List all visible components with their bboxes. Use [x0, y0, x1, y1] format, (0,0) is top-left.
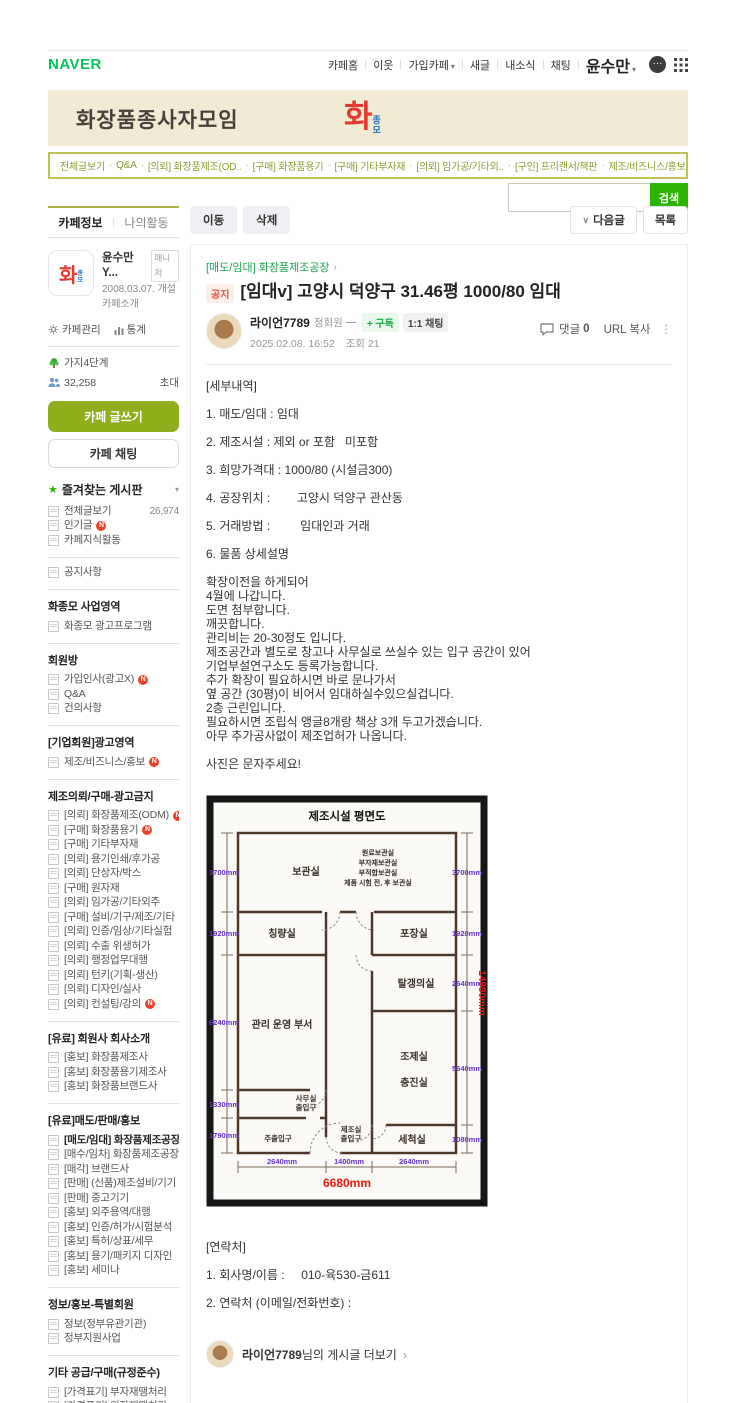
board-icon [48, 621, 59, 632]
navbar-item[interactable]: [의뢰] 임가공/기타외.. [416, 158, 503, 173]
delete-button[interactable]: 삭제 [243, 206, 290, 234]
board-icon [48, 1081, 59, 1092]
dim-bottom: 2640mm [399, 1157, 429, 1166]
board-label: [홍보] 화장품브랜드사 [64, 1080, 157, 1094]
cafe-profile: 화 종 모 윤수만 Y... 매니저 2008.03.07. 개설 카페소개 [48, 250, 179, 312]
board-icon [48, 1149, 59, 1160]
sidebar-board-item[interactable]: 건의사항 [48, 702, 179, 717]
star-icon: ★ [48, 483, 58, 496]
board-icon [48, 1135, 59, 1146]
board-label: 인기글 [64, 519, 92, 533]
board-label: 건의사항 [64, 702, 102, 716]
dim-left: 1790mm [209, 1131, 239, 1140]
board-icon [48, 825, 59, 836]
sidebar-board-item[interactable]: [홍보] 화장품용기제조사 [48, 1065, 179, 1080]
manager-badge: 매니저 [151, 250, 180, 282]
bar-chart-icon [114, 325, 124, 335]
sidebar-board-item[interactable]: [매도/임대] 화장품제조공장 [48, 1133, 179, 1148]
post-author-row: 라이언7789 정회원 — + 구독 1:1 채팅 2025.02.08. 16… [206, 313, 672, 351]
author-name[interactable]: 라이언7789 [250, 314, 310, 331]
avatar [206, 1340, 234, 1368]
chevron-down-icon: ▾ [451, 62, 455, 71]
divider [48, 1355, 179, 1356]
sidebar-board-item[interactable]: [홍보] 세미나 [48, 1264, 179, 1279]
board-label: [구매] 화장품용기 [64, 824, 138, 838]
sidebar-board-item[interactable]: [구매] 설비/기구/제조/기타 [48, 910, 179, 925]
apps-grid-icon[interactable] [674, 58, 688, 72]
room-weighing: 칭량실 [268, 927, 296, 940]
breadcrumb[interactable]: [매도/임대] 화장품제조공장 › [206, 259, 672, 275]
board-icon [48, 1178, 59, 1189]
sidebar-board-item[interactable]: [의뢰] 컨설팅/강의N [48, 997, 179, 1012]
more-options-icon[interactable]: ⋮ [661, 322, 673, 336]
sidebar-board-item[interactable]: [의뢰] 디자인/실사 [48, 983, 179, 998]
room-management: 관리 운영 부서 [252, 1018, 313, 1031]
divider [48, 779, 179, 780]
board-icon [48, 1265, 59, 1276]
tab-my-activity[interactable]: 나의활동 [114, 214, 179, 231]
room-washing: 세척실 [398, 1133, 426, 1146]
navbar-item[interactable]: [구매] 기타부자재 [334, 158, 405, 173]
board-label: 공지사항 [64, 566, 102, 580]
navbar-item[interactable]: Q&A [116, 160, 137, 171]
board-icon [48, 854, 59, 865]
sidebar-menu: 전체글보기26,974인기글N카페지식활동공지사항화종모 사업영역화종모 광고프… [48, 504, 179, 1403]
board-icon [48, 984, 59, 995]
tab-cafe-info[interactable]: 카페정보 [48, 214, 113, 231]
board-label: [홍보] 외주용역/대행 [64, 1206, 151, 1220]
sidebar-board-item[interactable]: [가격표기] 부자재땡처리 [48, 1385, 179, 1400]
divider [48, 589, 179, 590]
main-entrance-label: 주출입구 [264, 1133, 292, 1143]
cafe-chat-button[interactable]: 카페 채팅 [48, 439, 179, 468]
topbar-user-menu[interactable]: 윤수만▾ [579, 53, 643, 77]
cafe-stats-link[interactable]: 통계 [114, 322, 146, 337]
office-entrance-label: 사무실 [296, 1093, 317, 1103]
board-icon [48, 1333, 59, 1344]
members-icon [48, 377, 60, 388]
cafe-manage-link[interactable]: 카페관리 [48, 322, 101, 337]
dim-left: 6240mm [209, 1018, 239, 1027]
board-icon [48, 897, 59, 908]
board-label: [홍보] 화장품용기제조사 [64, 1066, 167, 1080]
board-icon [48, 912, 59, 923]
sidebar-board-item[interactable]: 가입인사(광고X)N [48, 673, 179, 688]
new-badge: N [145, 999, 155, 1009]
board-label: Q&A [64, 688, 86, 702]
gear-icon [48, 324, 59, 335]
board-label: [의뢰] 수출 위생허가 [64, 940, 151, 954]
storage-note: 부적합보관실 [359, 868, 398, 877]
dim-total-height: 14980mm [476, 970, 487, 1016]
divider [48, 725, 179, 726]
board-label: [구매] 원자재 [64, 882, 119, 896]
dim-right: 5640mm [452, 1064, 482, 1073]
subscribe-button[interactable]: + 구독 [362, 313, 399, 332]
sidebar-board-item[interactable]: [의뢰] 단상자/박스 [48, 867, 179, 882]
cafe-logo-sub-bottom: 모 [77, 278, 83, 285]
sidebar-board-item[interactable]: Q&A [48, 687, 179, 702]
sidebar-board-item[interactable]: 인기글N [48, 519, 179, 534]
board-label: [홍보] 용기/패키지 디자인 [64, 1250, 172, 1264]
mfg-entrance-label: 출입구 [341, 1133, 362, 1143]
board-label: 전체글보기 [64, 505, 111, 519]
favorite-boards-header: ★ 즐겨찾는 게시판 ▾ [48, 481, 179, 498]
sidebar-board-item[interactable]: [홍보] 용기/패키지 디자인 [48, 1249, 179, 1264]
sidebar-section-title: 회원방 [48, 652, 179, 668]
board-label: 가입인사(광고X) [64, 673, 134, 687]
board-icon [48, 1236, 59, 1247]
board-icon [48, 535, 59, 546]
sidebar-board-item[interactable]: 카페지식활동 [48, 533, 179, 548]
cafe-intro-link[interactable]: 카페소개 [102, 297, 179, 312]
divider [48, 1103, 179, 1104]
board-icon [48, 520, 59, 531]
new-badge: N [96, 521, 106, 531]
sidebar-section-title: [유료]매도/판매/홍보 [48, 1112, 179, 1128]
board-label: [의뢰] 행정업무대행 [64, 954, 148, 968]
room-preparation: 조제실 [400, 1050, 428, 1063]
topbar-link[interactable]: 이웃 [366, 57, 400, 73]
naver-logo[interactable]: NAVER [48, 56, 102, 73]
chevron-down-icon[interactable]: ▾ [175, 485, 179, 494]
board-icon [48, 1067, 59, 1078]
next-post-label: 다음글 [593, 212, 625, 228]
room-changing: 탈갱의실 [398, 977, 435, 990]
move-button[interactable]: 이동 [190, 206, 237, 234]
board-label: [의뢰] 화장품제조(ODM) [64, 809, 169, 823]
board-icon [48, 868, 59, 879]
main-content: 이동 삭제 ∨ 다음글 목록 [매도/임대] 화장품제조공장 › 공지 [임대v… [190, 206, 688, 1403]
board-icon [48, 1251, 59, 1262]
board-count: 26,974 [150, 505, 179, 519]
floorplan-image[interactable]: 제조시설 평면도 [206, 795, 488, 1212]
sidebar-board-item[interactable]: [판매] 중고기기 [48, 1191, 179, 1206]
manager-name[interactable]: 윤수만 Y... [102, 251, 147, 281]
divider [48, 1021, 179, 1022]
floorplan-svg: 제조시설 평면도 [206, 795, 488, 1207]
storage-note: 부자재보관실 [359, 858, 398, 867]
sidebar-board-item[interactable]: [의뢰] 용기인쇄/후가공 [48, 852, 179, 867]
new-badge: N [173, 811, 179, 821]
sidebar-board-item[interactable]: [매각] 브랜드사 [48, 1162, 179, 1177]
board-icon [48, 1164, 59, 1175]
board-label: 카페지식활동 [64, 534, 121, 548]
board-label: [판매] (신품)제조설비/기기 [64, 1177, 176, 1191]
room-storage: 보관실 [292, 865, 320, 878]
board-label: [의뢰] 컨설팅/강의 [64, 998, 141, 1012]
sidebar-section-title: 화종모 사업영역 [48, 598, 179, 614]
arrow-right-icon: › [403, 1348, 407, 1362]
sidebar-board-item[interactable]: [홍보] 화장품제조사 [48, 1051, 179, 1066]
board-icon [48, 1193, 59, 1204]
board-icon [48, 955, 59, 966]
board-label: 화종모 광고프로그램 [64, 620, 152, 634]
sidebar-board-item[interactable]: 화종모 광고프로그램 [48, 619, 179, 634]
cafe-logo: 화 종 모 [344, 98, 381, 136]
dot-separator: · [409, 160, 412, 171]
sidebar-board-item[interactable]: [의뢰] 임가공/기타외주 [48, 896, 179, 911]
sidebar-section-title: [기업회원]광고영역 [48, 734, 179, 750]
dim-left: 1330mm [209, 1100, 239, 1109]
arrow-right-icon: › [334, 262, 337, 273]
cafe-logo-sub-bottom: 모 [373, 125, 381, 135]
dim-left: 1920mm [209, 929, 239, 938]
board-label: [의뢰] 턴키(기획-생산) [64, 969, 158, 983]
board-label: [구매] 설비/기구/제조/기타 [64, 911, 175, 925]
list-button[interactable]: 목록 [643, 206, 688, 234]
sidebar-board-item[interactable]: [구매] 기타부자재 [48, 838, 179, 853]
tree-icon [48, 357, 60, 369]
dim-right: 3700mm [452, 868, 482, 877]
sidebar-board-item[interactable]: [매수/임차] 화장품제조공장 [48, 1148, 179, 1163]
board-label: [의뢰] 단상자/박스 [64, 867, 141, 881]
storage-note: 원료보관실 [362, 848, 394, 857]
notice-badge: 공지 [206, 284, 234, 303]
cafe-logo-sub-top: 종 [77, 271, 83, 278]
cafe-admin-row: 카페관리 통계 [48, 322, 179, 337]
sidebar: 카페정보 나의활동 화 종 모 윤수만 Y... 매니저 2008.03.07.… [48, 206, 179, 1403]
new-badge: N [149, 757, 159, 767]
navbar-item[interactable]: 제조/비즈니스/홍보 [608, 158, 685, 173]
board-label: [의뢰] 인증/임상/기타실험 [64, 925, 172, 939]
cafe-level-row: 가지4단계 [48, 355, 179, 370]
sidebar-board-item[interactable]: [의뢰] 수출 위생허가 [48, 939, 179, 954]
sidebar-board-item[interactable]: 정부지원사업 [48, 1332, 179, 1347]
talk-icon[interactable]: ··· [649, 56, 666, 73]
divider [48, 1287, 179, 1288]
post-meta-right: 댓글 0 URL 복사 ⋮ [540, 321, 672, 337]
sidebar-board-item[interactable]: 제조/비즈니스/홍보N [48, 755, 179, 770]
dim-right: 1080mm [452, 1135, 482, 1144]
comment-icon [540, 323, 554, 336]
comment-label[interactable]: 댓글 [559, 321, 580, 337]
navbar-item[interactable]: [구인] 프리랜서/책판 [515, 158, 597, 173]
sidebar-board-item[interactable]: 정보(정부유관기관) [48, 1317, 179, 1332]
post-body: [세부내역] 1. 매도/임대 : 임대 2. 제조시설 : 제외 or 포함 … [206, 379, 672, 771]
cafe-logo-main: 화 [59, 259, 77, 288]
dot-separator: · [141, 160, 144, 171]
board-icon [48, 810, 59, 821]
divider [48, 346, 179, 347]
topbar-link[interactable]: 새글 [463, 57, 497, 73]
sidebar-board-item[interactable]: 공지사항 [48, 566, 179, 581]
post-title-row: 공지 [임대v] 고양시 덕양구 31.46평 1000/80 임대 [206, 281, 672, 303]
divider [206, 364, 672, 365]
post-views: 조회 21 [346, 338, 380, 350]
board-label: 정부지원사업 [64, 1332, 121, 1346]
url-copy-button[interactable]: URL 복사 [604, 321, 651, 337]
post-card: [매도/임대] 화장품제조공장 › 공지 [임대v] 고양시 덕양구 31.46… [190, 244, 688, 1403]
author-more-posts-link[interactable]: 라이언7789님의 게시글 더보기 › [206, 1340, 672, 1368]
post-title: [임대v] 고양시 덕양구 31.46평 1000/80 임대 [240, 281, 560, 303]
dim-left: 3700mm [209, 868, 239, 877]
sidebar-board-item[interactable]: [의뢰] 턴키(기획-생산) [48, 968, 179, 983]
room-filling: 충진실 [400, 1076, 428, 1089]
board-label: [매수/임차] 화장품제조공장 [64, 1148, 179, 1162]
board-icon [48, 674, 59, 685]
navbar-item[interactable]: [구매] 화장품용기 [253, 158, 324, 173]
dot-separator: · [109, 160, 112, 171]
new-badge: N [142, 825, 152, 835]
board-icon [48, 1319, 59, 1330]
post-action-bar: 이동 삭제 ∨ 다음글 목록 [190, 206, 688, 234]
sidebar-board-item[interactable]: [홍보] 화장품브랜드사 [48, 1080, 179, 1095]
next-post-button[interactable]: ∨ 다음글 [570, 206, 636, 234]
sidebar-board-item[interactable]: 전체글보기26,974 [48, 504, 179, 519]
author-name: 라이언7789 [242, 1348, 302, 1362]
board-icon [48, 506, 59, 517]
board-label: [의뢰] 디자인/실사 [64, 983, 141, 997]
divider [48, 643, 179, 644]
sidebar-board-item[interactable]: [의뢰] 화장품제조(ODM)N [48, 809, 179, 824]
cafe-member-count: 32,258 [64, 377, 96, 389]
post-date: 2025.02.08. 16:52 [250, 338, 335, 350]
dot-separator: · [327, 160, 330, 171]
board-label: [의뢰] 용기인쇄/후가공 [64, 853, 160, 867]
board-icon [48, 970, 59, 981]
breadcrumb-label: [매도/임대] 화장품제조공장 [206, 259, 330, 275]
chat-1on1-button[interactable]: 1:1 채팅 [403, 313, 449, 332]
favorite-boards-label: 즐겨찾는 게시판 [62, 481, 143, 498]
new-badge: N [138, 675, 148, 685]
cafe-write-button[interactable]: 카페 글쓰기 [48, 401, 179, 432]
sidebar-board-item[interactable]: [의뢰] 행정업무대행 [48, 954, 179, 969]
dim-right: 1920mm [452, 929, 482, 938]
plan-title: 제조시설 평면도 [308, 809, 386, 823]
sidebar-section-title: [유료] 회원사 회사소개 [48, 1030, 179, 1046]
cafe-since: 2008.03.07. 개설 [102, 282, 179, 297]
board-icon [48, 703, 59, 714]
page: NAVER 카페홈이웃가입카페▾새글내소식채팅 윤수만▾ ··· 화장품종사자모… [0, 0, 734, 1403]
chevron-down-icon: ∨ [582, 215, 589, 226]
storage-note: 제품 시험 전, 후 보관실 [344, 878, 412, 887]
dim-bottom: 1400mm [334, 1157, 364, 1166]
board-label: [구매] 기타부자재 [64, 838, 138, 852]
board-icon [48, 1207, 59, 1218]
dot-separator: · [245, 160, 248, 171]
board-icon [48, 941, 59, 952]
cafe-manage-label: 카페관리 [62, 322, 101, 337]
more-posts-label: 님의 게시글 더보기 [302, 1348, 397, 1362]
board-icon [48, 757, 59, 768]
sidebar-section-title: 정보/홍보-특별회원 [48, 1296, 179, 1312]
post-contact: [연락처] 1. 회사명/이름 : 010-육530-금611 2. 연락처 (… [206, 1240, 672, 1310]
invite-link[interactable]: 초대 [160, 375, 179, 390]
avatar[interactable] [206, 313, 242, 349]
topbar-link[interactable]: 채팅 [544, 57, 578, 73]
dim-bottom: 2640mm [267, 1157, 297, 1166]
board-label: 제조/비즈니스/홍보 [64, 756, 145, 770]
divider [48, 557, 179, 558]
board-icon [48, 883, 59, 894]
cafe-level-label: 가지4단계 [64, 355, 108, 370]
cafe-members-row: 32,258 초대 [48, 375, 179, 390]
board-icon [48, 1052, 59, 1063]
sidebar-board-item[interactable]: [구매] 원자재 [48, 881, 179, 896]
navbar-item[interactable]: [의뢰] 화장품제조(OD.. [148, 158, 242, 173]
board-label: [가격표기] 부자재땡처리 [64, 1386, 167, 1400]
board-label: 정보(정부유관기관) [64, 1318, 146, 1332]
navbar-item[interactable]: 전체글보기 [60, 158, 105, 173]
sidebar-board-item[interactable]: [홍보] 외주용역/대행 [48, 1206, 179, 1221]
board-icon [48, 926, 59, 937]
cafe-logo-sub-top: 종 [373, 115, 381, 125]
sidebar-board-item[interactable]: [구매] 화장품용기N [48, 823, 179, 838]
sidebar-tabs: 카페정보 나의활동 [48, 206, 179, 238]
sidebar-board-item[interactable]: [의뢰] 인증/임상/기타실험 [48, 925, 179, 940]
sidebar-board-item[interactable]: [홍보] 인증/허가/시험분석 [48, 1220, 179, 1235]
board-label: [홍보] 특허/상표/세무 [64, 1235, 153, 1249]
topbar-link[interactable]: 내소식 [498, 57, 542, 73]
topbar-link[interactable]: 카페홈 [321, 57, 365, 73]
cafe-thumbnail[interactable]: 화 종 모 [48, 250, 94, 296]
mfg-entrance-label: 제조실 [341, 1124, 362, 1134]
board-label: [매각] 브랜드사 [64, 1163, 129, 1177]
board-icon [48, 999, 59, 1010]
comment-count: 0 [583, 323, 589, 335]
sidebar-section-title: 기타 공급/구매(규정준수) [48, 1364, 179, 1380]
board-label: [홍보] 화장품제조사 [64, 1051, 148, 1065]
cafe-banner-title: 화장품종사자모임 [76, 104, 239, 134]
dot-separator: · [601, 160, 604, 171]
board-label: [의뢰] 임가공/기타외주 [64, 896, 160, 910]
dot-separator: · [508, 160, 511, 171]
board-label: [매도/임대] 화장품제조공장 [64, 1134, 179, 1148]
topbar: NAVER 카페홈이웃가입카페▾새글내소식채팅 윤수만▾ ··· [48, 50, 688, 78]
sidebar-board-item[interactable]: [가격표기] 원자재땡처리 [48, 1400, 179, 1403]
board-navbar: 전체글보기·Q&A·[의뢰] 화장품제조(OD..·[구매] 화장품용기·[구매… [48, 152, 688, 179]
topbar-links: 카페홈이웃가입카페▾새글내소식채팅 [321, 57, 579, 73]
board-icon [48, 567, 59, 578]
sidebar-board-item[interactable]: [판매] (신품)제조설비/기기 [48, 1177, 179, 1192]
cafe-stats-label: 통계 [127, 322, 146, 337]
board-label: [판매] 중고기기 [64, 1192, 129, 1206]
post-meta-line: 2025.02.08. 16:52 조회 21 [250, 336, 448, 351]
board-label: [홍보] 세미나 [64, 1264, 119, 1278]
cafe-logo-main: 화 [344, 98, 373, 136]
author-rank: 정회원 [314, 315, 343, 330]
rank-icon: — [346, 317, 356, 328]
topbar-link[interactable]: 가입카페▾ [401, 57, 462, 73]
board-icon [48, 689, 59, 700]
room-packing: 포장실 [400, 927, 428, 940]
user-name: 윤수만 [586, 59, 630, 76]
board-icon [48, 839, 59, 850]
board-icon [48, 1387, 59, 1398]
board-icon [48, 1222, 59, 1233]
sidebar-board-item[interactable]: [홍보] 특허/상표/세무 [48, 1235, 179, 1250]
sidebar-section-title: 제조의뢰/구매-광고금지 [48, 788, 179, 804]
chevron-down-icon: ▾ [632, 65, 636, 74]
office-entrance-label: 출입구 [296, 1102, 317, 1112]
dim-total-width: 6680mm [323, 1176, 371, 1190]
cafe-banner[interactable]: 화장품종사자모임 화 종 모 [48, 90, 688, 146]
board-label: [홍보] 인증/허가/시험분석 [64, 1221, 172, 1235]
